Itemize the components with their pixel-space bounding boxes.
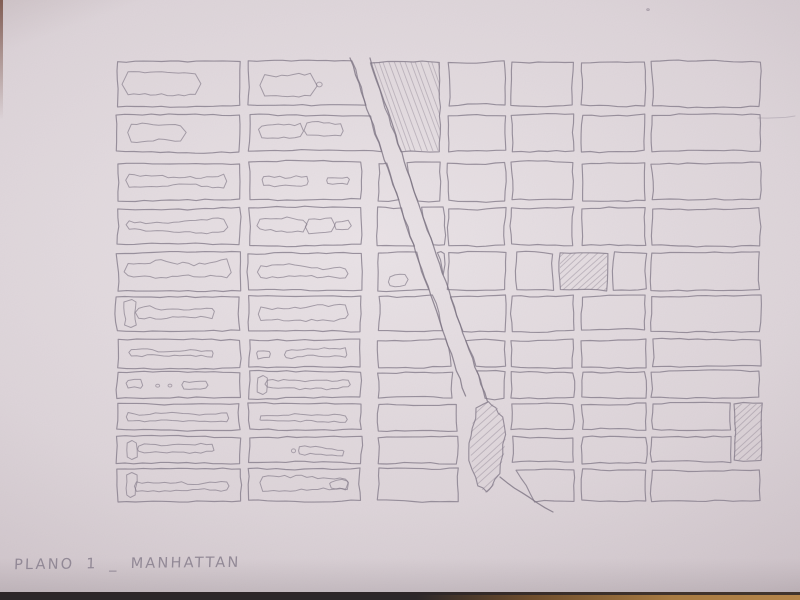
map-title: PLANO 1 _ MANHATTAN: [14, 555, 241, 573]
photo-grain-overlay: [0, 0, 800, 600]
manhattan-plan-sketch: [0, 0, 800, 600]
table-edge: [0, 592, 800, 600]
photo-left-edge-shadow: [0, 0, 3, 120]
photo-of-hand-drawn-map: PLANO 1 _ MANHATTAN: [0, 0, 800, 600]
